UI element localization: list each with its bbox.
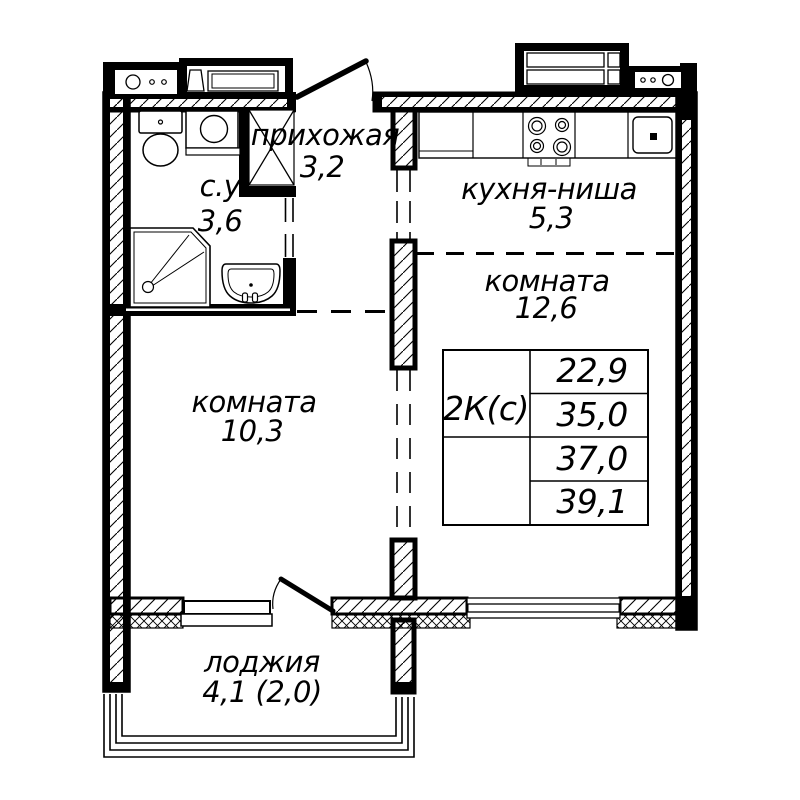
table-area-value-1: 22,9: [556, 351, 627, 390]
room-label-bathroom: с.у: [200, 169, 242, 203]
area-label-room-left: 10,3: [221, 414, 284, 448]
area-label-kitchen: 5,3: [529, 201, 574, 235]
table-area-value-4: 39,1: [556, 482, 627, 521]
washbasin-icon: [222, 264, 280, 303]
left-exterior-wall: [103, 62, 130, 692]
area-label-bathroom: 3,6: [198, 204, 243, 238]
room-label-hallway: прихожая: [251, 118, 400, 152]
loggia-window: [181, 601, 272, 626]
shower-icon: [130, 228, 210, 307]
floor-plan-canvas: прихожая 3,2 с.у 3,6 кухня-ниша 5,3 комн…: [0, 0, 800, 800]
area-label-loggia: 4,1 (2,0): [202, 675, 322, 709]
area-label-room-right: 12,6: [515, 291, 578, 325]
right-exterior-wall: [676, 92, 697, 630]
table-area-value-2: 35,0: [556, 395, 627, 434]
vent-block-top-left: [106, 58, 293, 97]
kitchen-sink-icon: [633, 117, 672, 153]
area-label-hallway: 3,2: [300, 150, 345, 184]
room-label-loggia: лоджия: [203, 645, 320, 679]
table-area-value-3: 37,0: [556, 439, 627, 478]
floor-plan-drawing: прихожая 3,2 с.у 3,6 кухня-ниша 5,3 комн…: [0, 0, 800, 800]
apartment-type-label: 2К(с): [443, 389, 529, 428]
washing-machine-icon: [186, 111, 240, 155]
